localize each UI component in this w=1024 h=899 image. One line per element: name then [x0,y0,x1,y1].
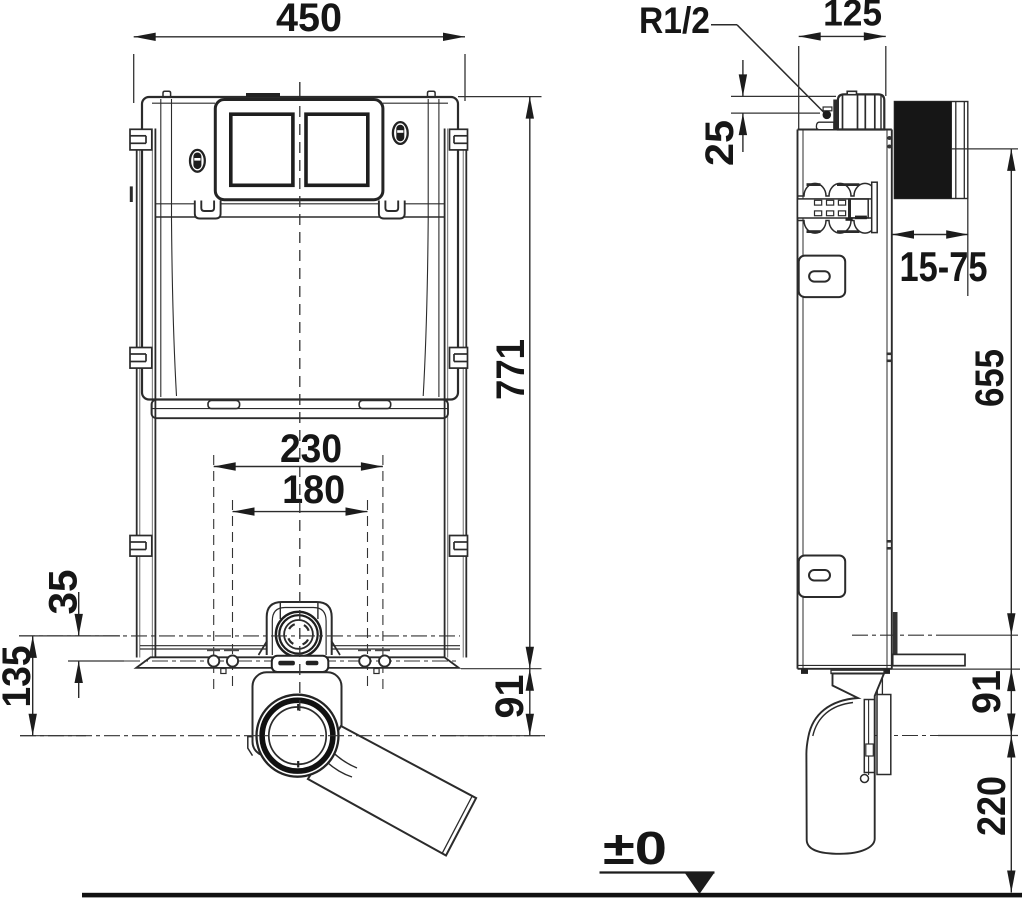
svg-text:135: 135 [0,646,39,708]
svg-text:655: 655 [968,349,1012,407]
svg-text:450: 450 [276,0,342,40]
svg-text:771: 771 [489,339,533,400]
svg-text:25: 25 [698,120,742,166]
svg-text:R1/2: R1/2 [639,0,710,41]
svg-text:15-75: 15-75 [900,243,988,290]
svg-text:125: 125 [823,0,882,34]
svg-text:91: 91 [965,670,1009,714]
svg-text:230: 230 [280,427,342,471]
svg-text:±0: ±0 [603,822,667,874]
svg-text:220: 220 [970,776,1014,836]
svg-text:180: 180 [282,468,345,512]
svg-text:91: 91 [488,675,532,719]
svg-text:35: 35 [42,570,86,615]
